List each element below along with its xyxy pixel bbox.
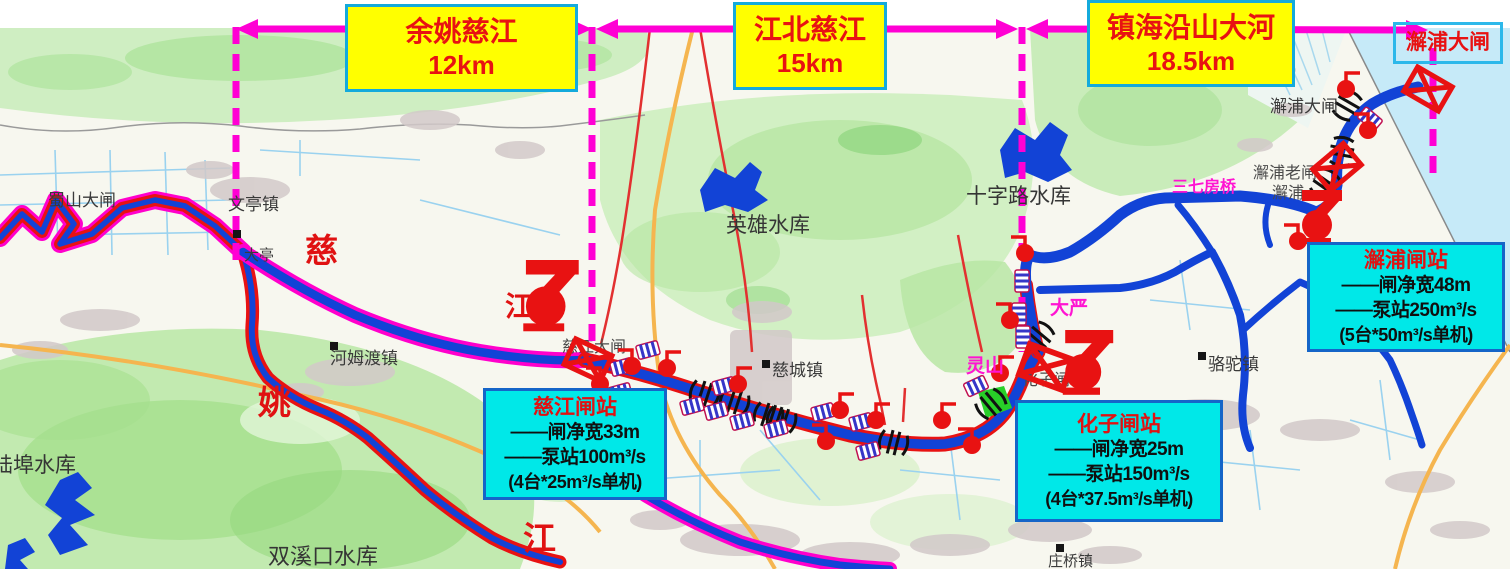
town-marker (233, 230, 241, 238)
label-sanqifang-bridge: 三七房桥 (1172, 177, 1237, 196)
station-pump: ——泵站250m³/s (1310, 299, 1502, 324)
segment-length: 18.5km (1090, 45, 1292, 78)
label-hemudu-town: 河姆渡镇 (330, 349, 398, 369)
station-units: (4台*37.5m³/s单机) (1018, 488, 1220, 511)
station-box-xiepu: 澥浦闸站 ——闸净宽48m ——泵站250m³/s (5台*50m³/s单机) (1307, 242, 1505, 352)
label-cicheng-town: 慈城镇 (772, 361, 823, 381)
label-xiepu-partial: 澥浦 (1272, 183, 1304, 202)
label-zhuangqiao-town: 庄桥镇 (1048, 552, 1093, 569)
river-char-jiang-lower: 江 (523, 520, 556, 557)
label-luotuo-town: 骆驼镇 (1208, 355, 1259, 375)
river-char-ci: 慈 (305, 232, 338, 269)
segment-box-yuyao-cijiang: 余姚慈江 12km (345, 4, 578, 92)
segment-name: 镇海沿山大河 (1090, 10, 1292, 45)
segment-name: 江北慈江 (736, 12, 884, 47)
station-gate-width: ——闸净宽25m (1018, 438, 1220, 463)
coast-gate-label: 澥浦大闸 (1393, 22, 1503, 64)
station-units: (5台*50m³/s单机) (1310, 324, 1502, 347)
segment-length: 12km (348, 49, 575, 82)
segment-length: 15km (736, 47, 884, 80)
label-shizilu-reservoir: 十字路水库 (966, 184, 1071, 208)
sluice-icon (1015, 270, 1029, 292)
label-wenting-town: 文亭镇 (228, 195, 279, 215)
station-gate-width: ——闸净宽48m (1310, 274, 1502, 299)
station-units: (4台*25m³/s单机) (486, 471, 664, 494)
town-marker (1056, 544, 1064, 552)
town-marker (762, 360, 770, 368)
station-pump: ——泵站150m³/s (1018, 463, 1220, 488)
segment-box-jiangbei-cijiang: 江北慈江 15km (733, 2, 887, 90)
segment-name: 余姚慈江 (348, 14, 575, 49)
label-yingxiong-reservoir: 英雄水库 (726, 213, 810, 237)
label-lingshan: 灵山 (966, 355, 1004, 377)
town-marker (1198, 352, 1206, 360)
segment-box-zhenhai-yanshan: 镇海沿山大河 18.5km (1087, 0, 1295, 87)
label-dating: 大亭 (244, 246, 274, 264)
station-title: 慈江闸站 (486, 394, 664, 421)
label-shuangxikou-reservoir: 双溪口水库 (268, 545, 378, 569)
station-title: 澥浦闸站 (1310, 247, 1502, 274)
station-gate-width: ——闸净宽33m (486, 421, 664, 446)
station-title: 化子闸站 (1018, 411, 1220, 438)
label-shushan-gate: 蜀山大闸 (48, 191, 116, 211)
label-xiepu-dazha-town: 澥浦大闸 (1270, 97, 1338, 117)
label-lubu-reservoir: 陆埠水库 (0, 453, 76, 477)
project-map: 慈江大闸 化子闸 澥浦老闸 澥浦 慈 江 姚 江 (0, 0, 1510, 569)
label-dayan: 大严 (1050, 296, 1088, 319)
label-xiepu-old-gate: 澥浦老闸 (1253, 163, 1317, 182)
station-box-cijiang: 慈江闸站 ——闸净宽33m ——泵站100m³/s (4台*25m³/s单机) (483, 388, 667, 500)
station-box-huazi: 化子闸站 ——闸净宽25m ——泵站150m³/s (4台*37.5m³/s单机… (1015, 400, 1223, 522)
station-pump: ——泵站100m³/s (486, 446, 664, 471)
river-char-yao: 姚 (257, 384, 291, 421)
